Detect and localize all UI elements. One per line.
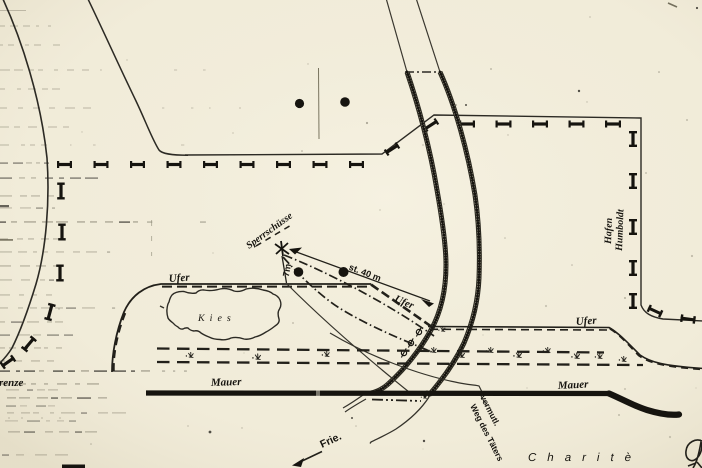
svg-text:Mauer: Mauer bbox=[557, 378, 590, 392]
svg-text:Hafen: Hafen bbox=[603, 217, 615, 245]
svg-text:Charitè: Charitè bbox=[528, 452, 642, 464]
svg-text:Kies: Kies bbox=[197, 313, 236, 324]
svg-text:Grenze: Grenze bbox=[0, 377, 24, 389]
svg-text:Ufer: Ufer bbox=[168, 272, 190, 285]
svg-text:Ufer: Ufer bbox=[575, 315, 597, 328]
svg-text:Mauer: Mauer bbox=[210, 376, 243, 389]
svg-text:Humboldt: Humboldt bbox=[614, 208, 627, 252]
